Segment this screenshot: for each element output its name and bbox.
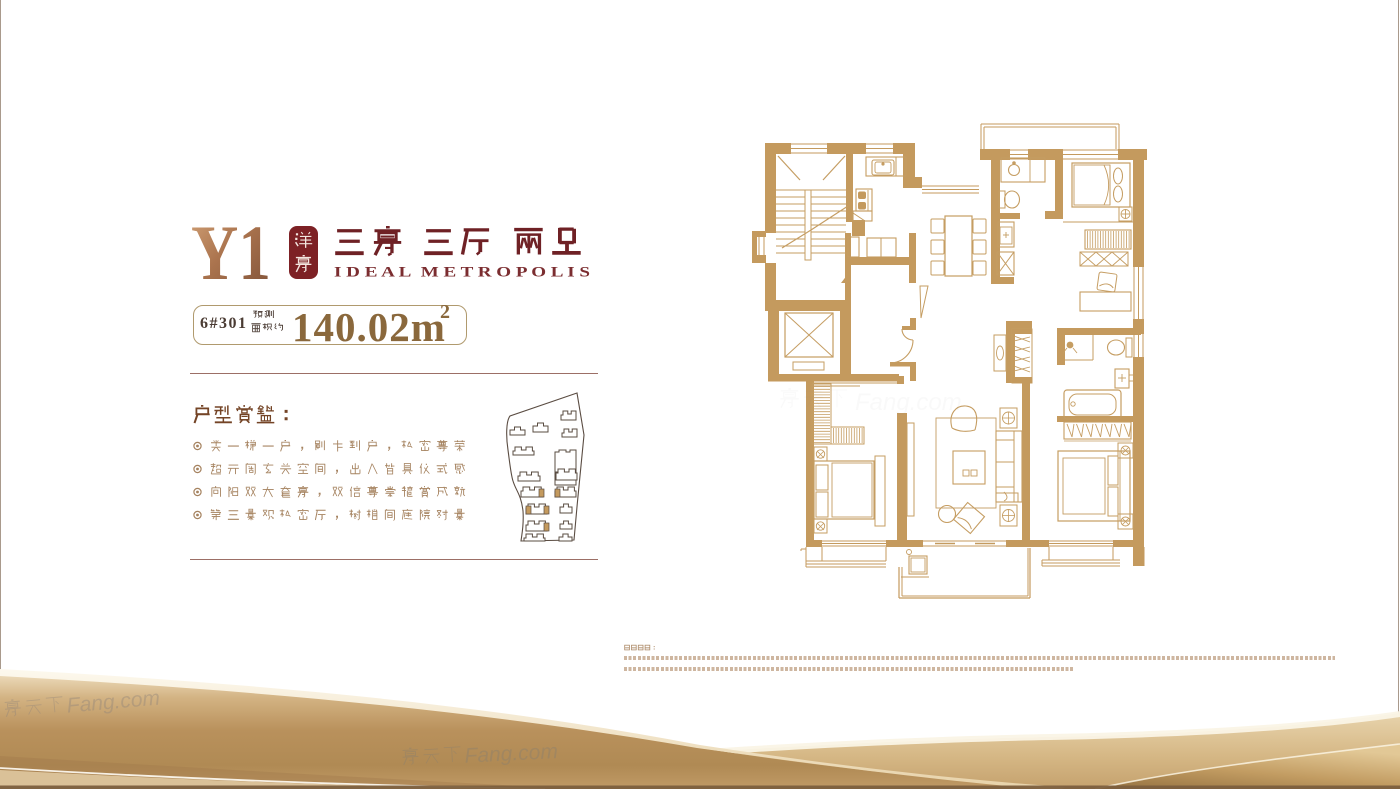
svg-text:Fang.com: Fang.com — [66, 692, 161, 718]
svg-text:Fang.com: Fang.com — [464, 740, 558, 768]
svg-text:Y1: Y1 — [191, 210, 271, 290]
svg-text:I D E A L M E T R O P O L I S: I D E A L M E T R O P O L I S — [334, 265, 590, 281]
svg-text:Fang.com: Fang.com — [855, 389, 962, 416]
